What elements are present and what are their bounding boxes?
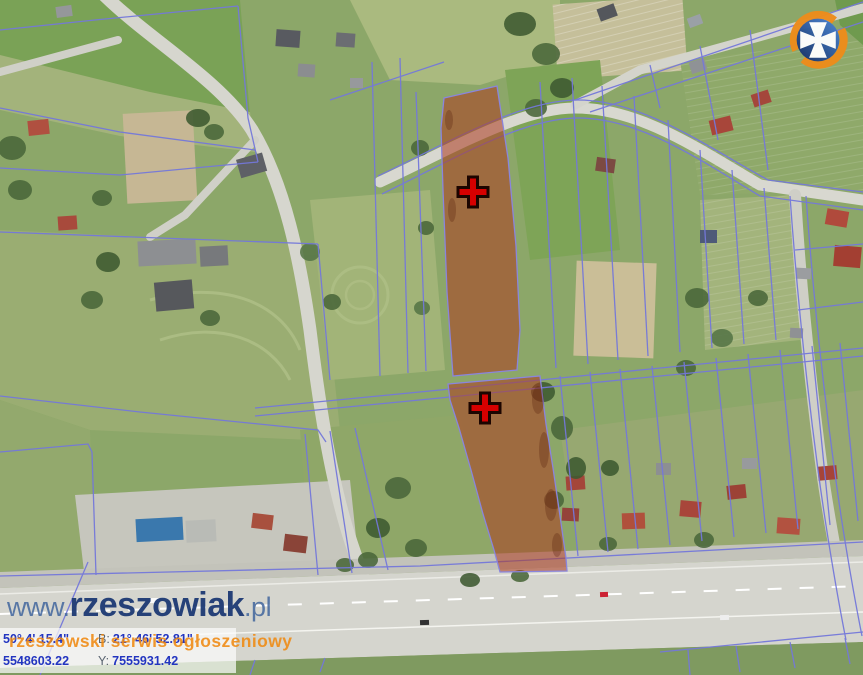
highlighted-parcel-upper [441,86,520,376]
watermark-name: rzeszowiak [70,586,245,625]
watermark-tld: .pl [244,592,271,623]
site-tagline: rzeszowski serwis ogłoszeniowy [9,631,292,652]
aerial-map-viewport[interactable]: www.rzeszowiak.pl rzeszowski serwis ogło… [0,0,863,675]
y-coordinate-value: 7555931.42 [112,654,178,668]
map-imagery [0,0,863,675]
y-coordinate-label: Y: [98,654,109,668]
site-watermark: www.rzeszowiak.pl [7,586,271,625]
projected-coords-row: 5548603.22 Y: 7555931.42 [0,650,236,672]
x-coordinate-value: 5548603.22 [0,654,98,668]
watermark-www: www. [7,592,70,623]
rzeszow-city-crest-logo [786,6,850,74]
